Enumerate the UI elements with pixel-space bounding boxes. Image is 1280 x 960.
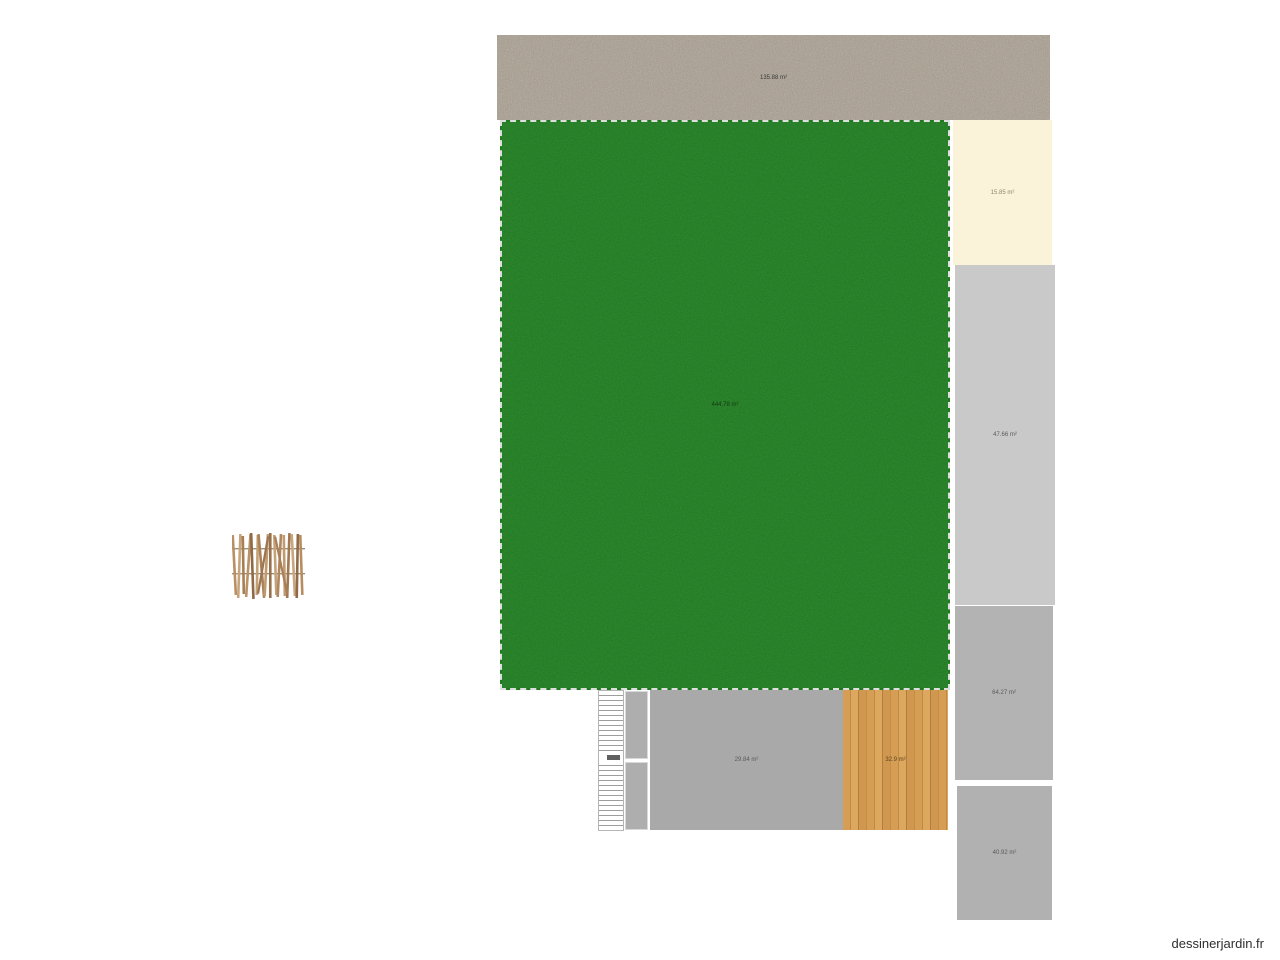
cream-zone-area[interactable]: 15.85 m² [953,120,1052,265]
gray-tall-area-label: 47.66 m² [993,432,1017,438]
gray-zone-center[interactable]: 29.84 m² [650,690,843,830]
wood-deck-area[interactable]: 32.9 m² [843,690,948,830]
gray-center-area-label: 29.84 m² [735,757,759,763]
lawn-area[interactable]: 444.78 m² [500,120,950,690]
gray-zone-tall[interactable]: 47.66 m² [955,265,1055,605]
stair-side-panel-upper[interactable] [625,691,648,759]
cream-area-label: 15.85 m² [991,190,1015,196]
gravel-area-label: 135.88 m² [760,75,787,81]
fence-stakes [232,533,304,599]
gray-mid-area-label: 64.27 m² [992,690,1016,696]
gray-zone-mid[interactable]: 64.27 m² [955,606,1053,780]
gray-zone-bottom[interactable]: 40.92 m² [957,786,1052,920]
wooden-fence[interactable] [232,532,305,600]
staircase[interactable] [598,690,624,831]
deck-area-label: 32.9 m² [885,757,905,763]
stair-flight-upper [599,691,623,754]
gray-bottom-area-label: 40.92 m² [993,850,1017,856]
stair-flight-lower [599,761,623,830]
gravel-path-area[interactable]: 135.88 m² [497,35,1050,120]
watermark: dessinerjardin.fr [1172,936,1265,951]
lawn-area-label: 444.78 m² [711,402,738,408]
garden-plan-canvas: 135.88 m² 444.78 m² 15.85 m² 47.66 m² 64… [0,0,1280,960]
stair-landing-block [607,755,620,760]
stair-side-panel-lower[interactable] [625,762,648,830]
